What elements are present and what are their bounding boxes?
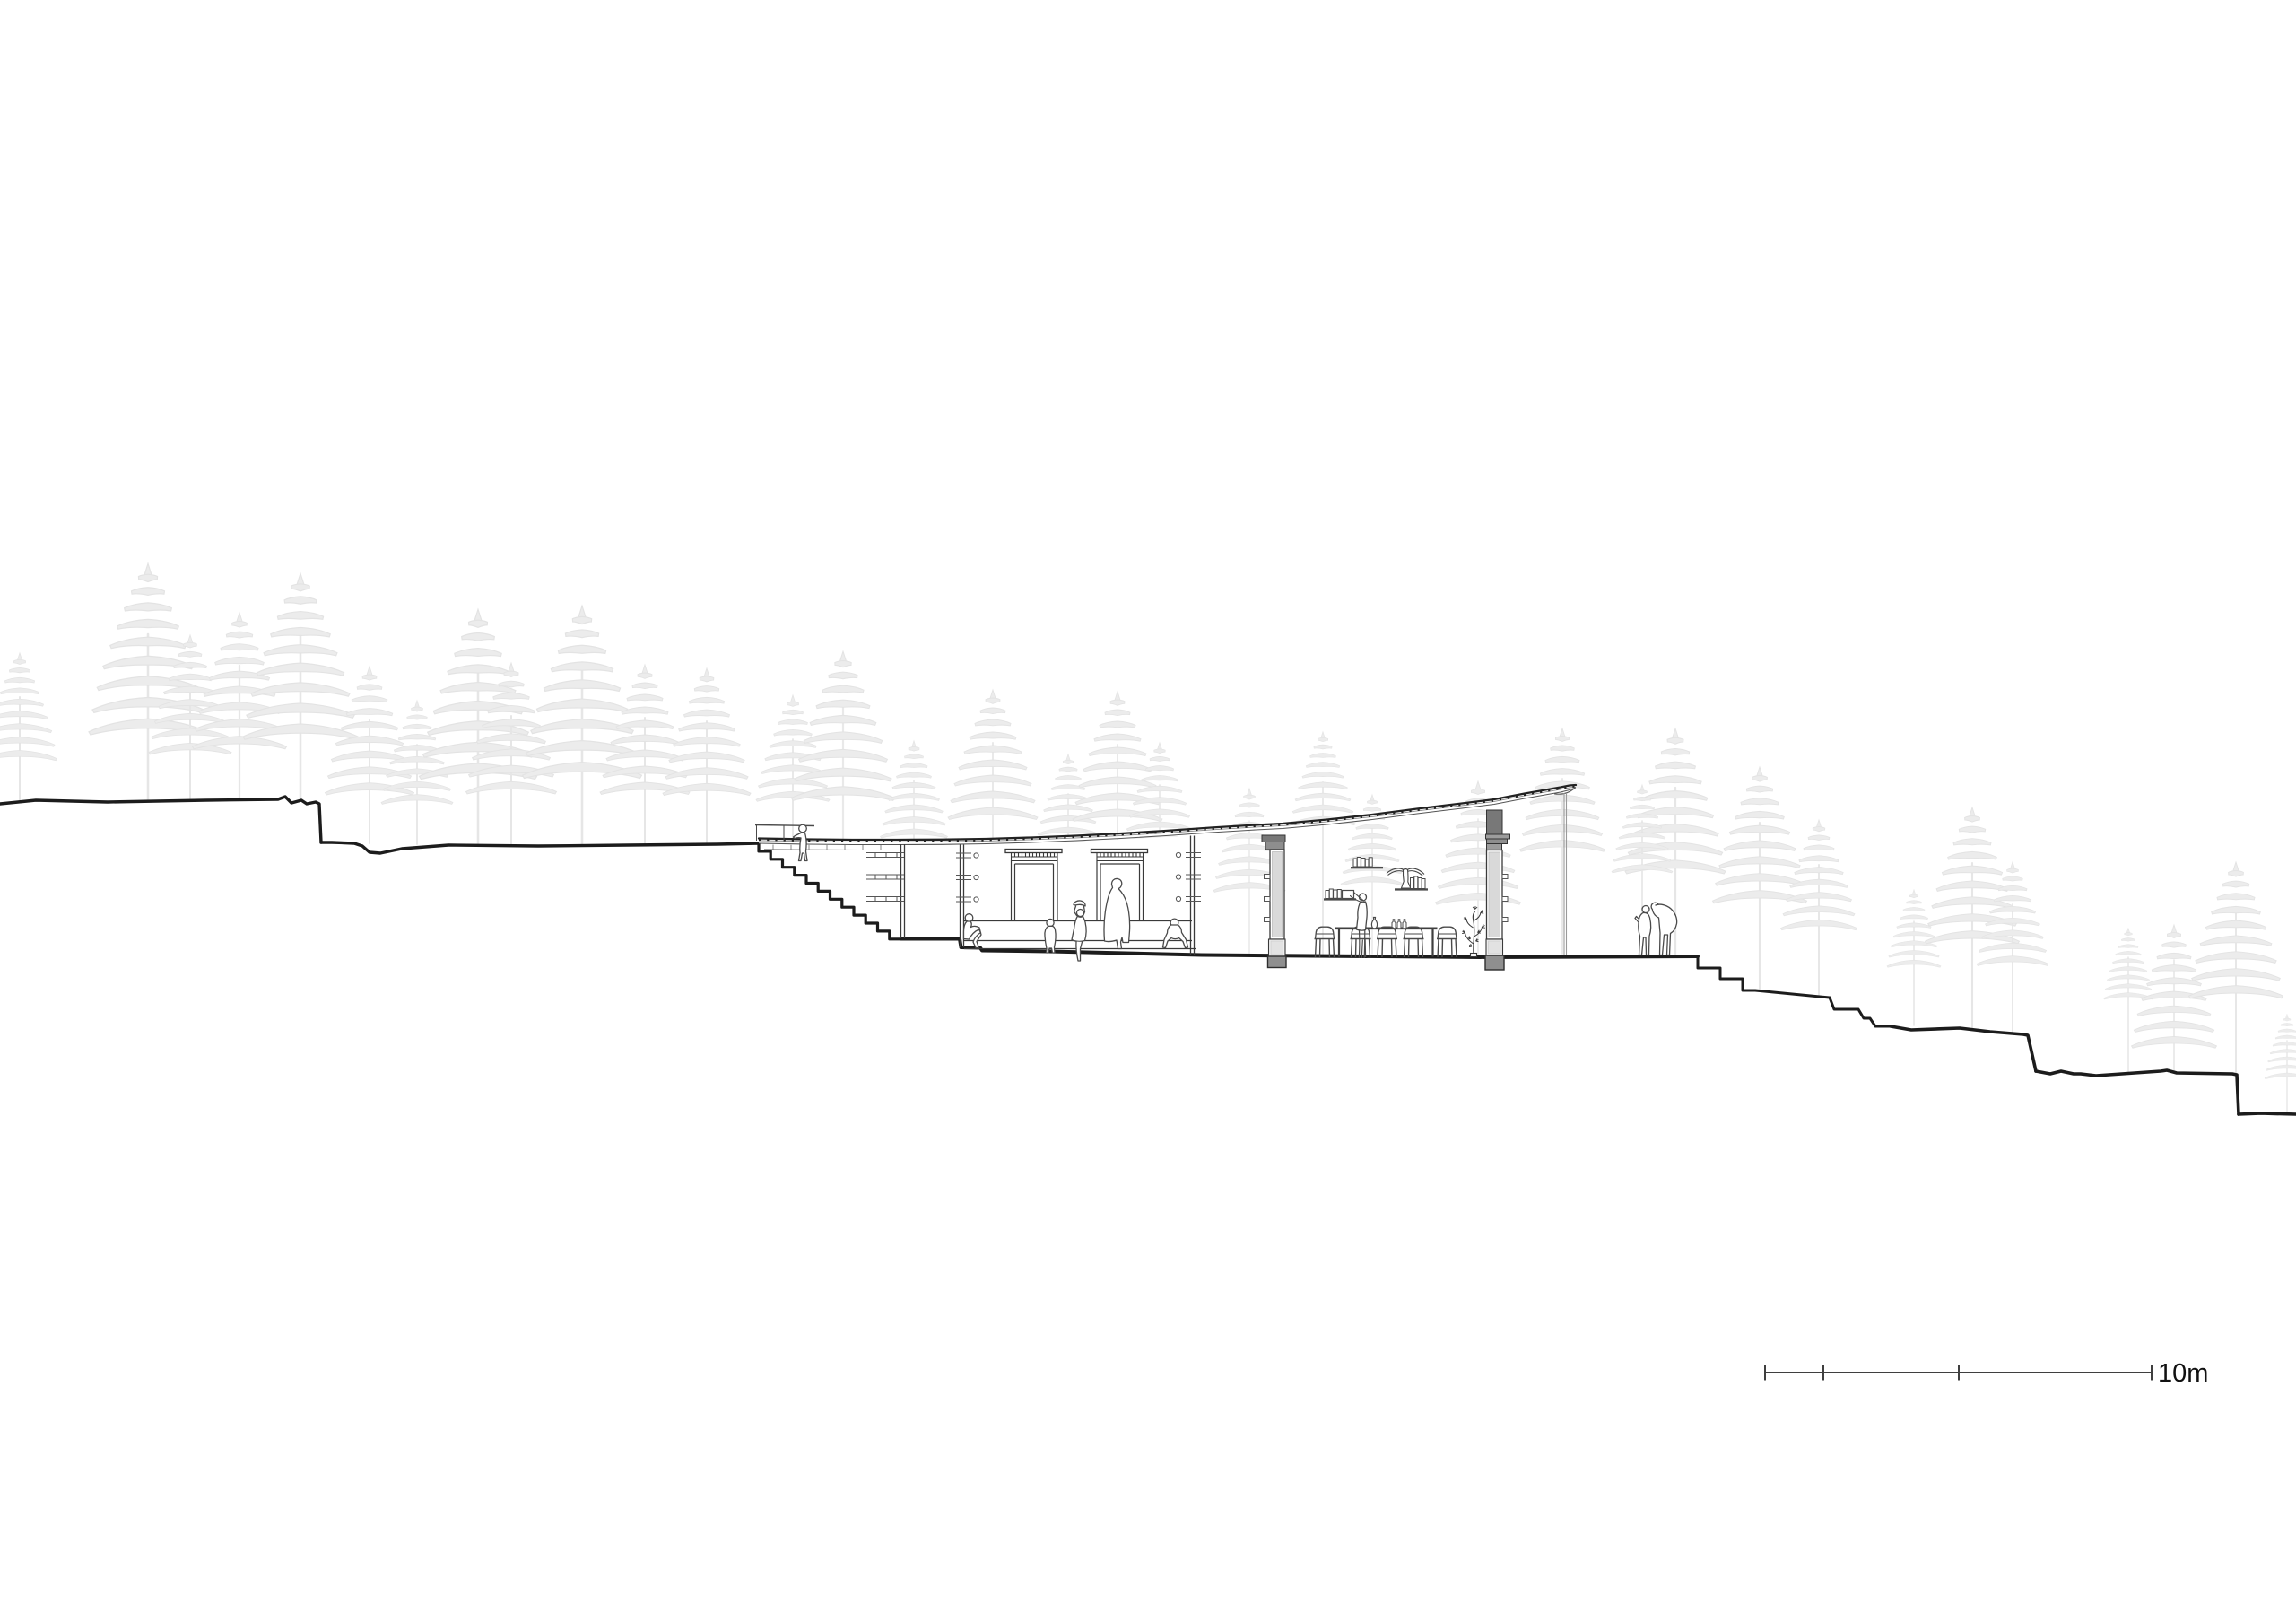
- svg-text:10m: 10m: [2158, 1359, 2208, 1388]
